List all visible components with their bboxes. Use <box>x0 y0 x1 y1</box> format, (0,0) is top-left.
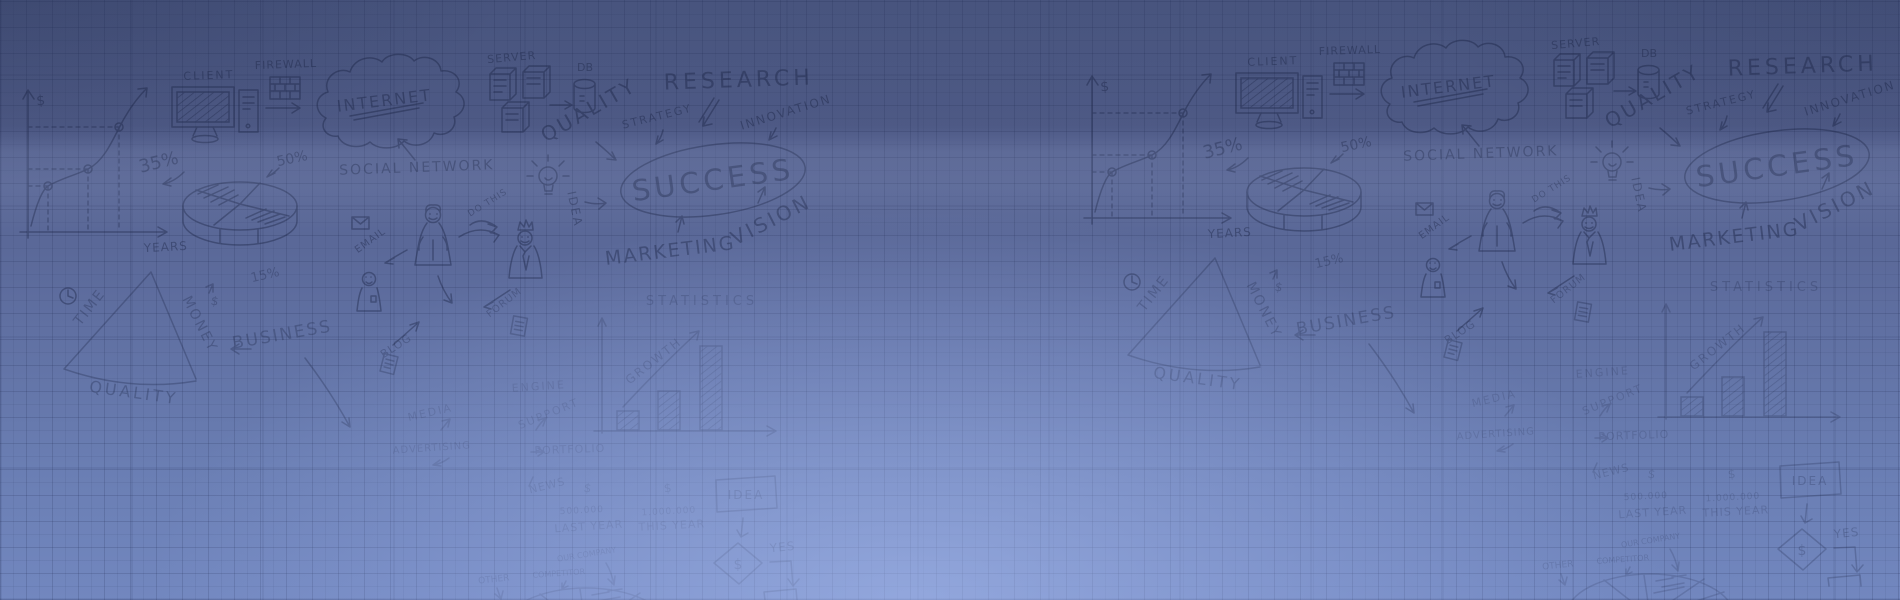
lighting-overlay <box>0 0 1900 600</box>
doodle-banner: $ YEARS 35% CLIENT <box>0 0 1900 600</box>
